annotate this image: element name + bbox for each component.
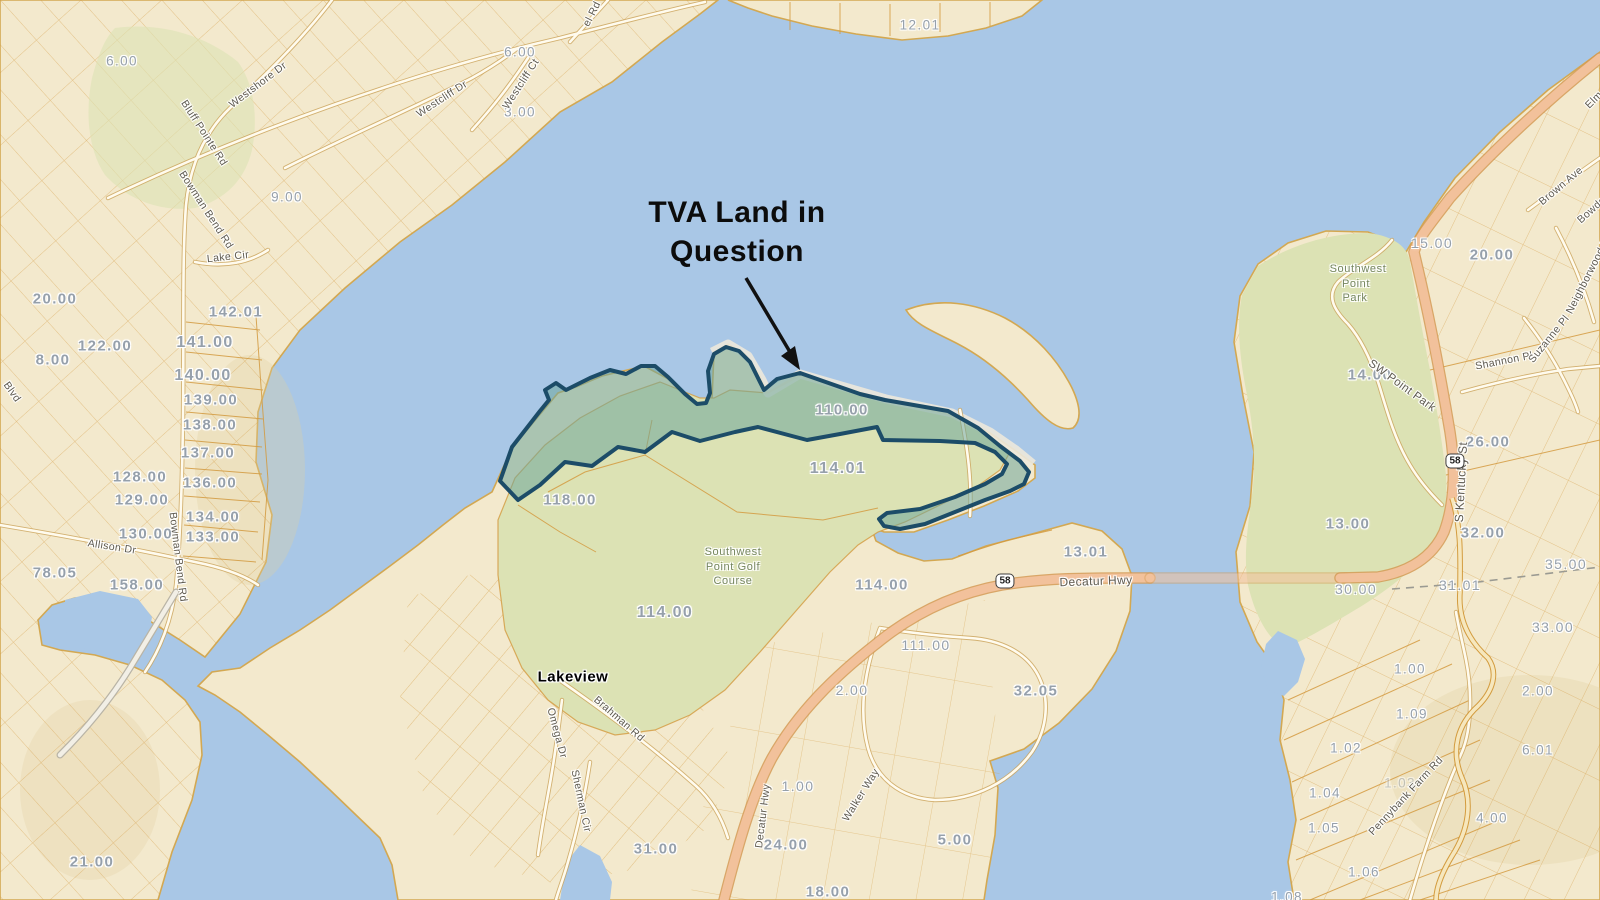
annotation-line2: Question bbox=[648, 232, 825, 271]
parcel-map[interactable]: 6.009.006.003.0012.0120.00142.01122.0014… bbox=[0, 0, 1600, 900]
annotation-line1: TVA Land in bbox=[648, 193, 825, 232]
annotation-title: TVA Land in Question bbox=[648, 193, 825, 271]
map-canvas bbox=[0, 0, 1600, 900]
